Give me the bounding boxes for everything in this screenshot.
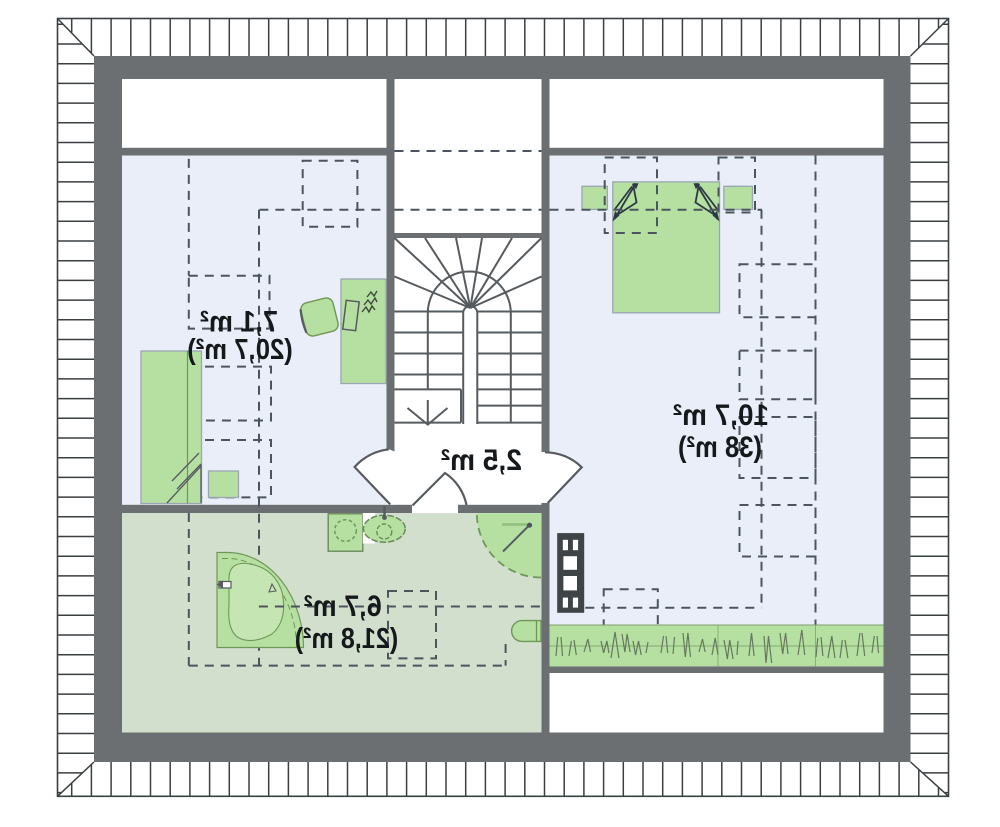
svg-text:2,5 m²: 2,5 m²	[441, 444, 522, 477]
svg-text:(21,8 m²): (21,8 m²)	[295, 623, 399, 655]
svg-text:(20,7 m²): (20,7 m²)	[187, 334, 293, 366]
svg-text:(38 m²): (38 m²)	[678, 431, 762, 464]
svg-text:10,7 m²: 10,7 m²	[673, 399, 769, 432]
svg-text:6,7 m²: 6,7 m²	[304, 590, 382, 623]
